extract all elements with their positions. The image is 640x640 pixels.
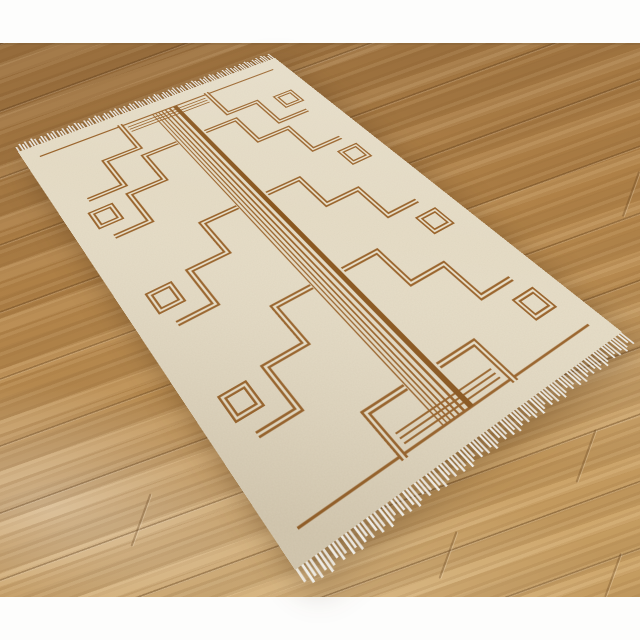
fringe-tassel-top xyxy=(162,92,168,98)
fringe-tassel-top xyxy=(15,147,20,152)
fringe-tassel-top xyxy=(94,115,101,122)
fringe-tassel-bottom xyxy=(357,523,368,536)
fringe-tassel-top xyxy=(129,103,136,109)
rug-shadow-wrapper xyxy=(0,0,640,640)
rug-pattern-graphic xyxy=(18,58,622,570)
fringe-tassel-bottom xyxy=(305,561,317,577)
scene-rug-photo xyxy=(0,0,640,640)
rug-lighting-shade xyxy=(18,58,622,570)
area-rug xyxy=(18,58,622,570)
